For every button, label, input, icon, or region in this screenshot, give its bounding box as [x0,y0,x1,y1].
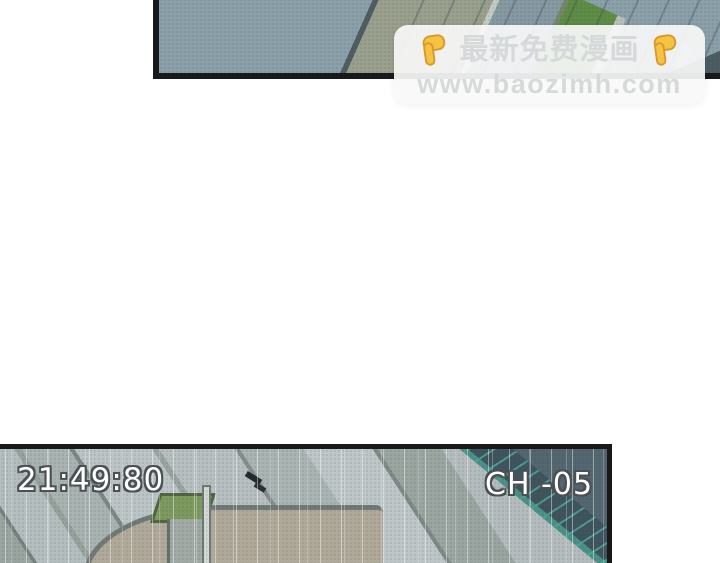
comic-reader-page: 最新免费漫画 www.baozimh.com 21:49:80 CH -05 [0,0,720,563]
pointing-down-icon [646,31,682,69]
pointing-down-icon [416,31,452,69]
watermark-headline: 最新免费漫画 [459,36,639,65]
watermark-url: www.baozimh.com [417,71,682,98]
cctv-channel-label: CH -05 [485,470,593,500]
comic-panel-cctv: 21:49:80 CH -05 [0,444,612,563]
light-post-art [202,485,211,563]
site-watermark-overlay[interactable]: 最新免费漫画 www.baozimh.com [394,25,705,104]
watermark-headline-row: 最新免费漫画 [418,33,680,67]
cctv-timestamp: 21:49:80 [17,465,164,496]
